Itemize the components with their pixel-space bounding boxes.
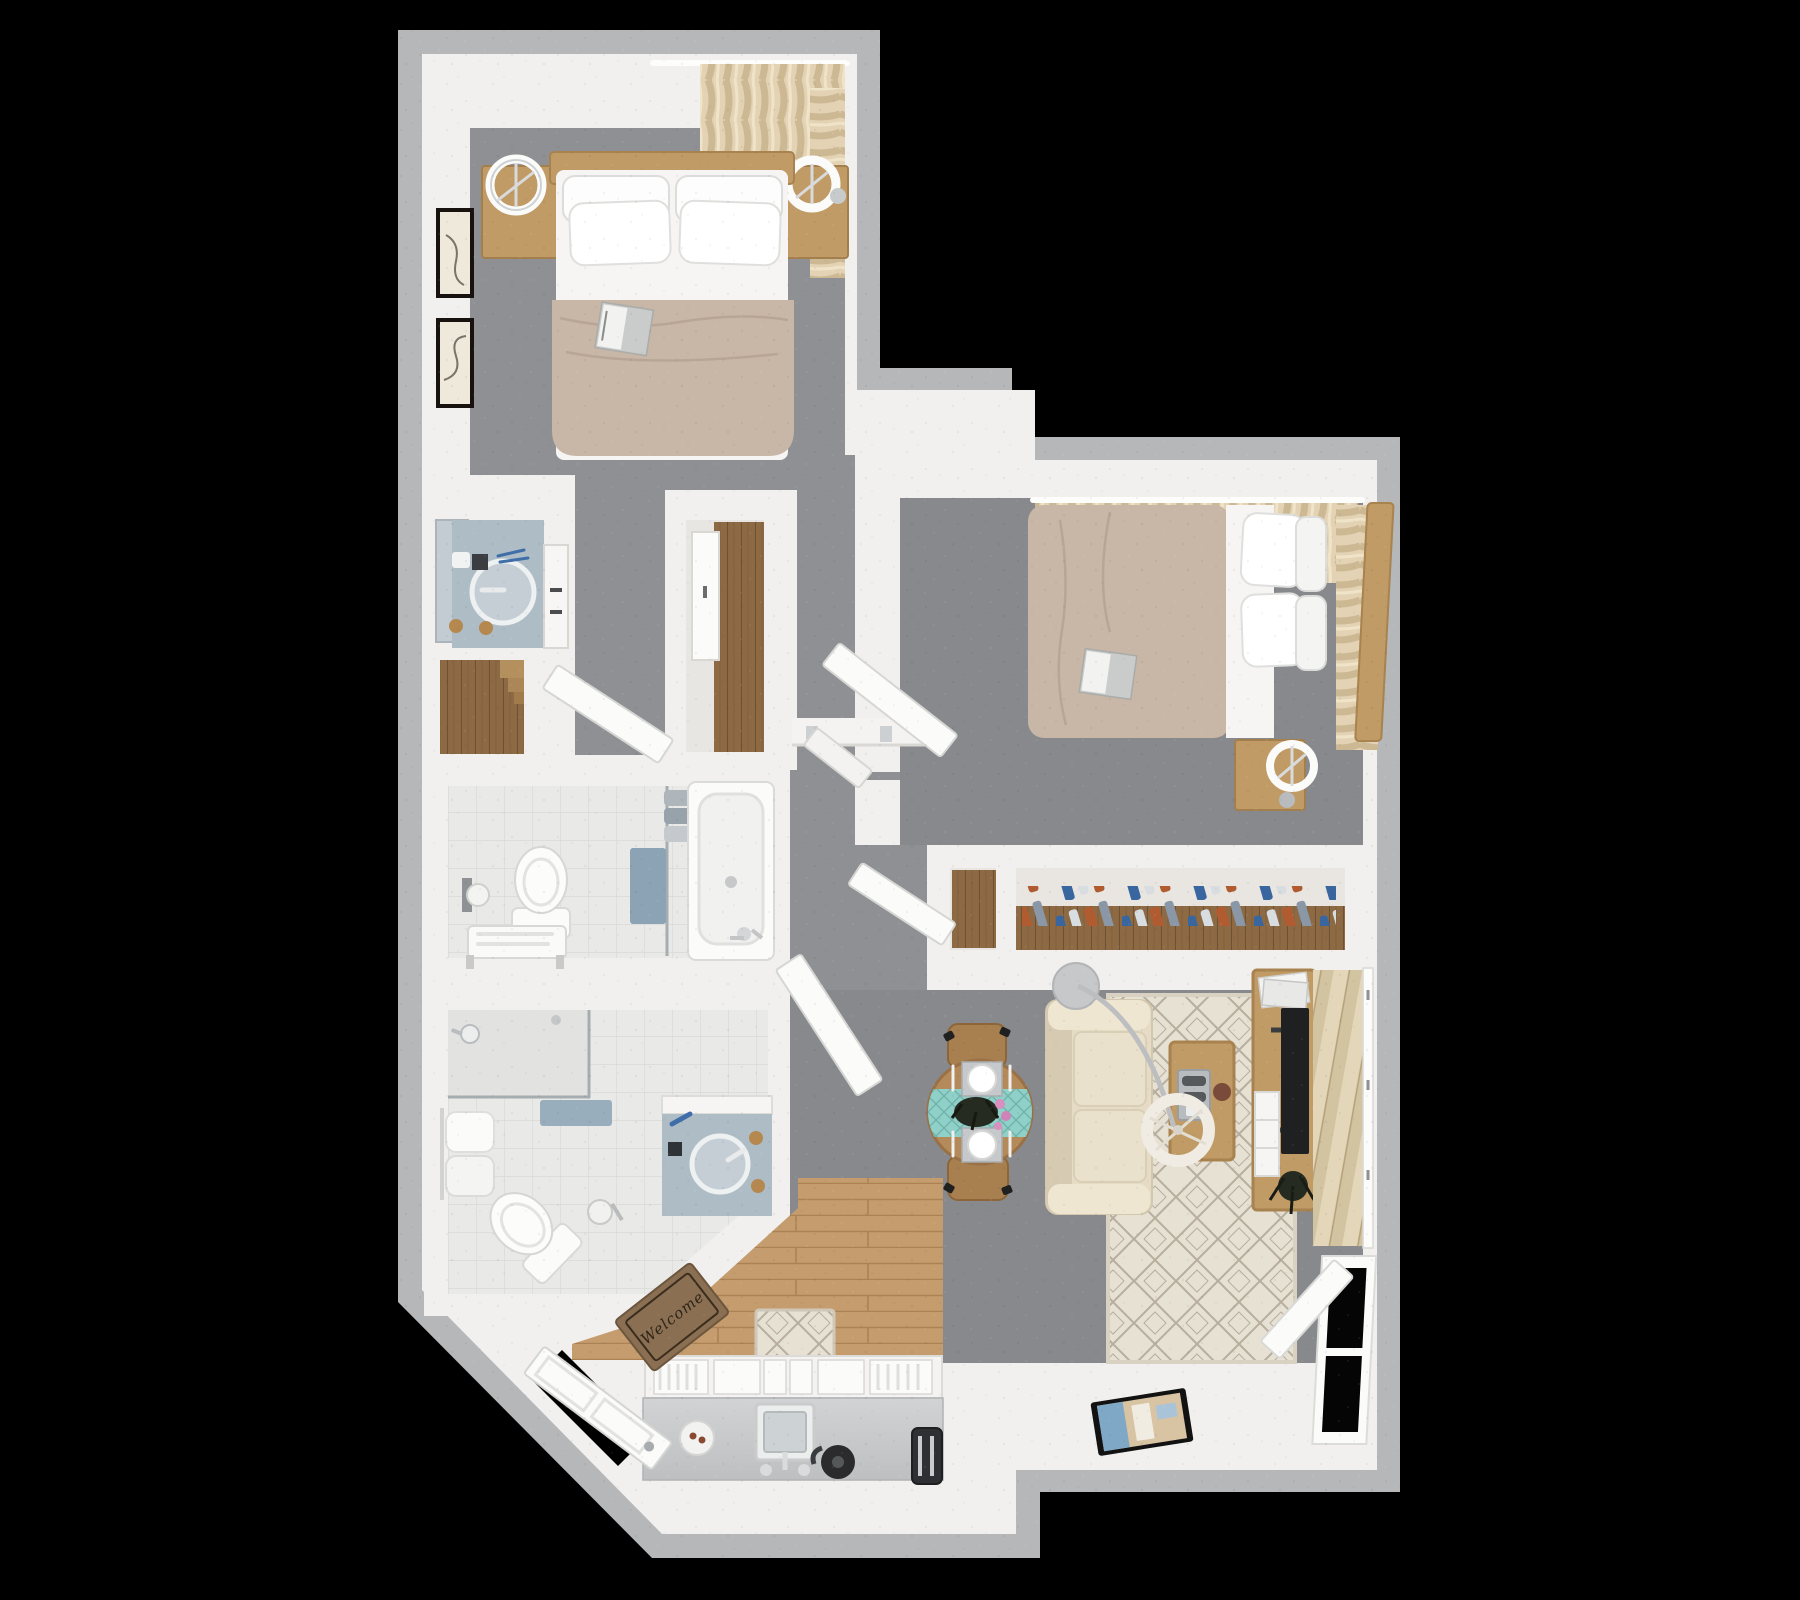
texture-overlay	[398, 30, 1400, 1558]
floorplan-svg: Welcome	[0, 0, 1800, 1600]
floorplan-stage: Welcome	[0, 0, 1800, 1600]
